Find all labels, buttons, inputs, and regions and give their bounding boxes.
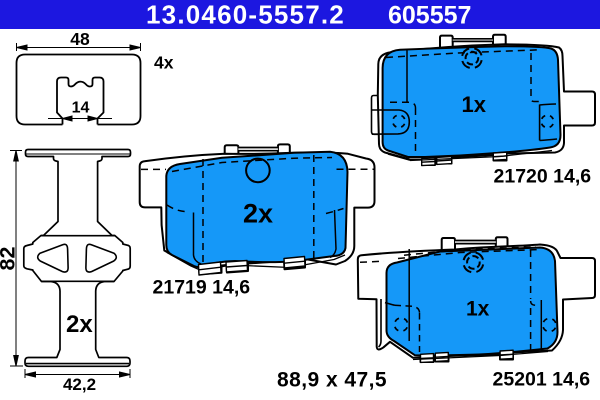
svg-text:48: 48	[70, 29, 90, 49]
svg-text:1x: 1x	[466, 298, 490, 321]
svg-text:4x: 4x	[154, 53, 174, 73]
svg-text:14: 14	[72, 100, 90, 117]
svg-text:1x: 1x	[462, 92, 487, 117]
svg-text:21719 14,6: 21719 14,6	[153, 277, 251, 299]
svg-text:88,9 x 47,5: 88,9 x 47,5	[277, 369, 387, 392]
svg-text:21720 14,6: 21720 14,6	[494, 166, 592, 188]
svg-text:2x: 2x	[66, 311, 93, 338]
svg-text:25201 14,6: 25201 14,6	[493, 369, 591, 391]
svg-text:605557: 605557	[388, 2, 471, 30]
svg-text:2x: 2x	[243, 199, 273, 229]
svg-text:82: 82	[0, 247, 20, 271]
svg-text:13.0460-5557.2: 13.0460-5557.2	[146, 0, 345, 30]
svg-text:42,2: 42,2	[63, 375, 96, 394]
